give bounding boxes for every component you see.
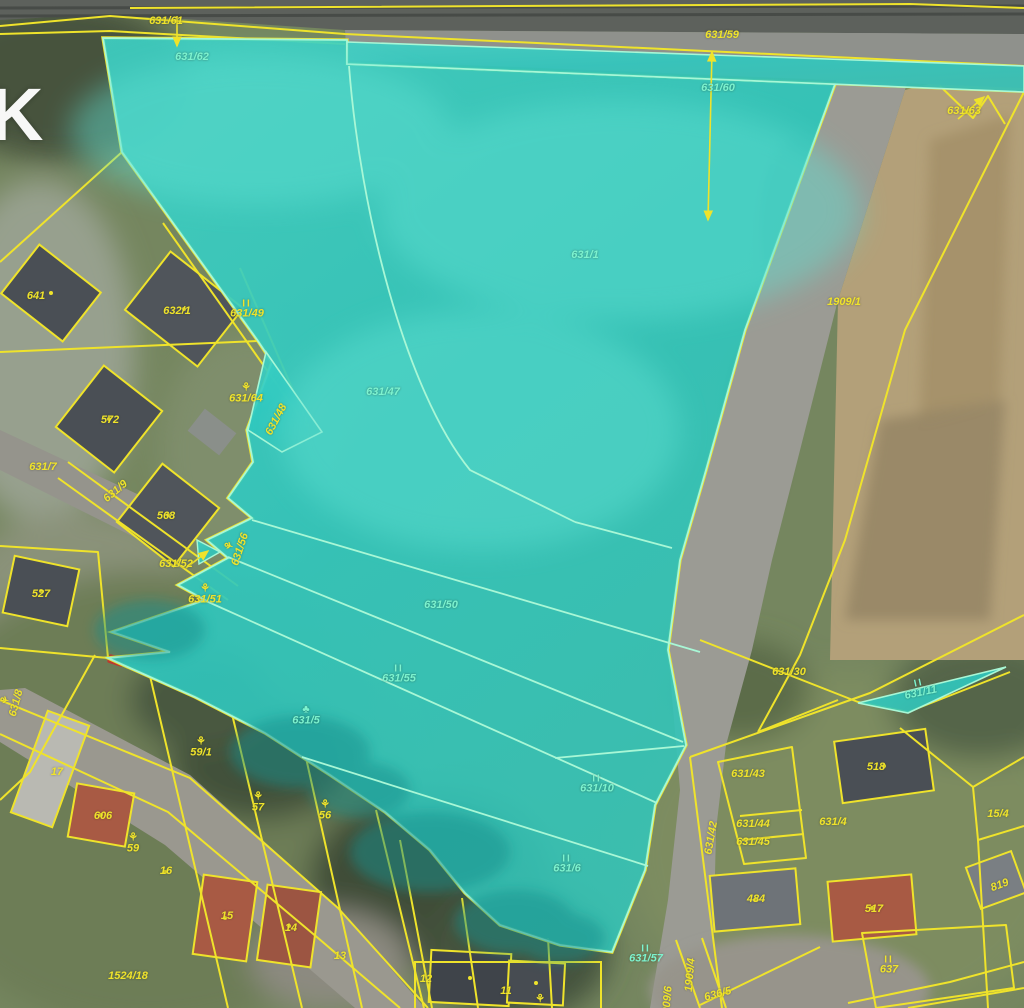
parcel-number: 11 bbox=[500, 986, 511, 998]
parcel-label-16[interactable]: 16 bbox=[160, 866, 172, 878]
parcel-number: 631/44 bbox=[736, 819, 770, 831]
parcel-number: 819 bbox=[989, 877, 1010, 894]
parcel-number: 1524/18 bbox=[108, 971, 148, 983]
parcel-number: 568 bbox=[157, 511, 175, 523]
parcel-number: 15 bbox=[221, 911, 233, 923]
parcel-label-57[interactable]: ⚘57 bbox=[252, 792, 264, 813]
parcel-label-631-47[interactable]: 631/47 bbox=[366, 387, 400, 399]
parcel-label-59[interactable]: ⚘59 bbox=[127, 833, 139, 854]
parcel-number: 572 bbox=[101, 415, 119, 427]
parcel-label-527[interactable]: 527 bbox=[32, 589, 50, 601]
parcel-number: 16 bbox=[160, 866, 172, 878]
parcel-label-632-1[interactable]: 632/1 bbox=[163, 306, 191, 318]
parcel-label-637[interactable]: II637 bbox=[880, 956, 898, 977]
parcel-label-631-7[interactable]: 631/7 bbox=[29, 462, 57, 474]
parcel-number: 15/4 bbox=[987, 809, 1008, 821]
parcel-number: 631/55 bbox=[382, 674, 416, 686]
parcel-label-518[interactable]: 518 bbox=[867, 762, 885, 774]
parcel-label-631-56[interactable]: ⚘631/56 bbox=[221, 529, 252, 568]
parcel-label-631-44[interactable]: 631/44 bbox=[736, 819, 770, 831]
parcel-number: 631/50 bbox=[424, 600, 458, 612]
parcel-label-631-5[interactable]: ♣631/5 bbox=[292, 705, 320, 726]
parcel-labels-layer: 631/61631/59631/63641632/1II631/49⚘631/6… bbox=[0, 0, 1024, 1008]
parcel-label-606[interactable]: 606 bbox=[94, 811, 112, 823]
parcel-label-59-1[interactable]: ⚘59/1 bbox=[190, 737, 211, 758]
parcel-label-631-59[interactable]: 631/59 bbox=[705, 30, 739, 42]
parcel-label-631-8[interactable]: ⚘631/8 bbox=[0, 686, 26, 718]
parcel-label-631-62[interactable]: 631/62 bbox=[175, 52, 209, 64]
parcel-number: 631/6 bbox=[553, 864, 581, 876]
parcel-number: 518 bbox=[867, 762, 885, 774]
parcel-label-12[interactable]: 12 bbox=[420, 974, 432, 986]
parcel-number: 527 bbox=[32, 589, 50, 601]
parcel-label-819[interactable]: 819 bbox=[989, 877, 1010, 894]
parcel-number: 17 bbox=[51, 767, 63, 779]
parcel-number: 631/45 bbox=[736, 837, 770, 849]
parcel-label-631-9[interactable]: 631/9 bbox=[102, 479, 131, 506]
parcel-number: 631/61 bbox=[149, 16, 183, 28]
parcel-number: 59/1 bbox=[190, 747, 211, 759]
parcel-number: 631/48 bbox=[264, 402, 290, 437]
parcel-label-631-60[interactable]: 631/60 bbox=[701, 83, 735, 95]
parcel-number: 632/1 bbox=[163, 306, 191, 318]
cadastral-map-view[interactable]: 631/61631/59631/63641632/1II631/49⚘631/6… bbox=[0, 0, 1024, 1008]
parcel-label-636-5[interactable]: 636/5 bbox=[703, 986, 733, 1004]
parcel-label-14[interactable]: 14 bbox=[285, 923, 297, 935]
parcel-label-15-4[interactable]: 15/4 bbox=[987, 809, 1008, 821]
parcel-label-631-63[interactable]: 631/63 bbox=[947, 106, 981, 118]
parcel-label-631-48[interactable]: 631/48 bbox=[264, 402, 290, 437]
parcel-label-1909-6[interactable]: 1909/6 bbox=[661, 986, 675, 1008]
parcel-number: 631/9 bbox=[102, 479, 131, 506]
parcel-number: 484 bbox=[747, 894, 765, 906]
parcel-label-631-55[interactable]: II631/55 bbox=[382, 665, 416, 686]
parcel-number: 631/57 bbox=[629, 954, 663, 966]
parcel-number: 631/59 bbox=[705, 30, 739, 42]
parcel-label-1524-18[interactable]: 1524/18 bbox=[108, 971, 148, 983]
parcel-number: 631/51 bbox=[188, 594, 222, 606]
parcel-label-17[interactable]: 17 bbox=[51, 767, 63, 779]
parcel-number: 631/52 bbox=[159, 559, 193, 571]
parcel-label-15[interactable]: 15 bbox=[221, 911, 233, 923]
watermark-logo-k: K bbox=[0, 72, 43, 157]
parcel-number: 631/62 bbox=[175, 52, 209, 64]
parcel-label-631-57[interactable]: II631/57 bbox=[629, 945, 663, 966]
parcel-number: 57 bbox=[252, 802, 264, 814]
parcel-label-1909-4[interactable]: 1909/4 bbox=[684, 958, 698, 993]
parcel-number: 631/5 bbox=[292, 715, 320, 727]
parcel-number: 637 bbox=[880, 965, 898, 977]
parcel-label-11[interactable]: 11 bbox=[500, 986, 511, 998]
parcel-number: 1909/6 bbox=[661, 986, 675, 1008]
parcel-label-631-6[interactable]: II631/6 bbox=[553, 855, 581, 876]
parcel-label-631-43[interactable]: 631/43 bbox=[731, 769, 765, 781]
parcel-number: 631/63 bbox=[947, 106, 981, 118]
parcel-number: 1909/4 bbox=[684, 958, 698, 993]
parcel-label-56[interactable]: ⚘56 bbox=[319, 800, 331, 821]
parcel-label-641[interactable]: 641 bbox=[27, 291, 45, 303]
parcel-label-631-11[interactable]: II631/11 bbox=[902, 676, 938, 703]
parcel-number: 631/42 bbox=[703, 820, 720, 855]
parcel-number: 14 bbox=[285, 923, 297, 935]
parcel-label-631-61[interactable]: 631/61 bbox=[149, 16, 183, 28]
parcel-number: 631/4 bbox=[819, 817, 847, 829]
parcel-number: 631/7 bbox=[29, 462, 57, 474]
parcel-label-631-42[interactable]: 631/42 bbox=[703, 820, 720, 855]
parcel-label-631-45[interactable]: 631/45 bbox=[736, 837, 770, 849]
parcel-number: 517 bbox=[865, 904, 883, 916]
parcel-label-631-10[interactable]: II631/10 bbox=[580, 775, 614, 796]
parcel-number: 13 bbox=[334, 951, 346, 963]
parcel-label-631-64[interactable]: ⚘631/64 bbox=[229, 383, 263, 404]
parcel-label-484[interactable]: 484 bbox=[747, 894, 765, 906]
parcel-number: 631/60 bbox=[701, 83, 735, 95]
parcel-number: 631/64 bbox=[229, 393, 263, 405]
parcel-label-631-30[interactable]: 631/30 bbox=[772, 667, 806, 679]
parcel-number: 631/1 bbox=[571, 250, 599, 262]
parcel-number: 641 bbox=[27, 291, 45, 303]
garden-symbol: ⚘ bbox=[535, 995, 545, 1005]
parcel-number: 606 bbox=[94, 811, 112, 823]
parcel-label-garden[interactable]: ⚘ bbox=[535, 995, 545, 1005]
parcel-number: 631/10 bbox=[580, 784, 614, 796]
parcel-number: 12 bbox=[420, 974, 432, 986]
parcel-label-631-50[interactable]: 631/50 bbox=[424, 600, 458, 612]
parcel-number: 631/30 bbox=[772, 667, 806, 679]
parcel-number: 636/5 bbox=[703, 986, 733, 1004]
parcel-label-631-1[interactable]: 631/1 bbox=[571, 250, 599, 262]
parcel-label-631-52[interactable]: 631/52 bbox=[159, 559, 193, 571]
parcel-number: 1909/1 bbox=[827, 297, 861, 309]
parcel-label-13[interactable]: 13 bbox=[334, 951, 346, 963]
parcel-number: 631/47 bbox=[366, 387, 400, 399]
parcel-label-631-4[interactable]: 631/4 bbox=[819, 817, 847, 829]
parcel-label-631-51[interactable]: ⚘631/51 bbox=[188, 584, 222, 605]
parcel-label-1909-1[interactable]: 1909/1 bbox=[827, 297, 861, 309]
parcel-number: 631/43 bbox=[731, 769, 765, 781]
parcel-label-568[interactable]: 568 bbox=[157, 511, 175, 523]
parcel-number: 56 bbox=[319, 810, 331, 822]
parcel-label-631-49[interactable]: II631/49 bbox=[230, 300, 264, 321]
parcel-number: 59 bbox=[127, 843, 139, 855]
parcel-number: 631/49 bbox=[230, 309, 264, 321]
parcel-label-517[interactable]: 517 bbox=[865, 904, 883, 916]
parcel-label-572[interactable]: 572 bbox=[101, 415, 119, 427]
